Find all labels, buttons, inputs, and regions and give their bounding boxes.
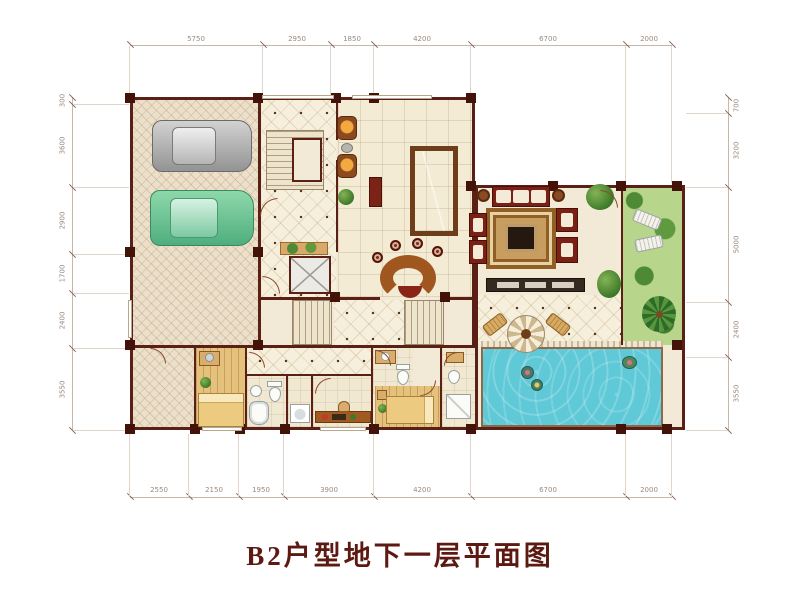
extension-line (686, 430, 728, 431)
dim-label: 3200 (733, 133, 742, 169)
car-green-cabin (170, 198, 218, 238)
dim-label: 2900 (59, 203, 68, 239)
sofa-cushion (496, 190, 511, 203)
sofa-cushion (513, 190, 528, 203)
extension-line (686, 113, 728, 114)
extension-line (129, 46, 130, 96)
dim-label: 4200 (402, 486, 442, 494)
dim-label: 2950 (277, 35, 317, 43)
plan-title: B2户型地下一层平面图 (0, 534, 800, 573)
dim-label: 2150 (194, 486, 234, 494)
column (466, 181, 476, 191)
column (280, 424, 290, 434)
barrel-lamp (337, 116, 357, 140)
extension-line (686, 302, 728, 303)
dim-label: 2550 (139, 486, 179, 494)
planter-box (280, 242, 328, 255)
column (672, 340, 682, 350)
extension-line (283, 434, 284, 496)
bed-pillow (424, 397, 433, 423)
column (440, 292, 450, 302)
side-table (477, 189, 490, 202)
window (262, 95, 334, 99)
desk (315, 411, 371, 423)
armchair (556, 237, 578, 263)
column (330, 292, 340, 302)
desk-item (322, 414, 328, 420)
deco-knob (341, 143, 353, 153)
extension-line (73, 430, 129, 431)
extension-line (373, 46, 374, 96)
window (320, 427, 366, 431)
dim-label: 3600 (59, 128, 68, 164)
extension-line (470, 434, 471, 496)
armchair (469, 240, 487, 264)
dresser-mirror (205, 353, 214, 362)
pool-float (531, 379, 543, 391)
column (616, 424, 626, 434)
wall (245, 348, 247, 427)
extension-line (671, 46, 672, 183)
wall (621, 188, 623, 345)
dim-label: 700 (733, 88, 742, 124)
elevator (289, 256, 331, 294)
desk-item (332, 414, 346, 420)
extension-line (188, 434, 189, 496)
bed (386, 396, 434, 424)
armchair (469, 213, 487, 237)
desk-item (350, 414, 356, 420)
column (125, 340, 135, 350)
armchair-cushion (561, 213, 573, 226)
potted-plant (338, 189, 354, 205)
wall (133, 345, 475, 348)
dim-label: 3550 (59, 372, 68, 408)
extension-line (262, 46, 263, 96)
billiard-table (410, 146, 458, 236)
dim-label: 3900 (309, 486, 349, 494)
sofa-three-seat (492, 186, 550, 207)
extension-line (686, 187, 728, 188)
staircase-lower-left (292, 300, 332, 345)
bar-stool (390, 240, 401, 251)
extension-line (671, 434, 672, 496)
bed-pillow (199, 394, 243, 403)
column (369, 424, 379, 434)
column (466, 93, 476, 103)
column (662, 424, 672, 434)
extension-line (73, 254, 129, 255)
coffee-table (505, 224, 537, 252)
lower-hall (334, 300, 404, 345)
extension-line (129, 434, 130, 496)
car-gray-cabin (172, 127, 216, 165)
wall (440, 348, 442, 427)
window (128, 300, 132, 338)
dim-label: 1950 (241, 486, 281, 494)
wall (286, 376, 288, 427)
armchair-cushion (473, 218, 483, 231)
column (125, 247, 135, 257)
dim-label: 300 (59, 83, 68, 119)
parasol-pole (521, 329, 531, 339)
floorplan-canvas: 5750 2950 1850 4200 6700 2000 2550 2150 … (0, 0, 800, 600)
shower (446, 394, 471, 419)
tv-cabinet (486, 278, 585, 292)
dim-label: 1850 (332, 35, 372, 43)
extension-line (625, 46, 626, 183)
staircase-lower-right (404, 300, 444, 345)
extension-line (73, 293, 129, 294)
dim-label: 4200 (402, 35, 442, 43)
bedroom-corridor (247, 348, 373, 376)
extension-line (686, 357, 728, 358)
potted-plant (200, 377, 211, 388)
extension-line (73, 348, 129, 349)
extension-line (73, 187, 129, 188)
column (253, 340, 263, 350)
column (616, 181, 626, 191)
extension-line (73, 104, 129, 105)
wall (258, 100, 261, 345)
tv-cabinet-item (552, 282, 574, 288)
window (352, 95, 432, 99)
dim-label: 5750 (176, 35, 216, 43)
desk-chair (338, 401, 350, 412)
stair-landing (292, 138, 322, 182)
wall (194, 348, 196, 427)
extension-line (238, 434, 239, 496)
dim-label: 2400 (733, 312, 742, 348)
bed (198, 393, 244, 427)
bathtub (249, 401, 269, 425)
tv-cabinet-item (497, 282, 519, 288)
column (466, 424, 476, 434)
wall (311, 376, 313, 427)
bar-stool (432, 246, 443, 257)
column (125, 93, 135, 103)
sink (250, 385, 262, 397)
tv-cabinet-item (525, 282, 547, 288)
dim-line-right (728, 97, 729, 430)
barrel-lamp (337, 154, 357, 178)
wall (247, 374, 373, 376)
armchair-cushion (561, 243, 573, 257)
sofa-cushion (531, 190, 546, 203)
extension-line (625, 434, 626, 496)
dim-label: 3550 (733, 376, 742, 412)
dim-label: 5000 (733, 227, 742, 263)
column (125, 424, 135, 434)
pool-float (521, 366, 534, 379)
wall (259, 297, 380, 300)
wall (371, 348, 373, 427)
extension-line (330, 46, 331, 96)
dim-line-bottom (130, 497, 672, 498)
armchair (556, 208, 578, 232)
column (672, 181, 682, 191)
armchair-cushion (473, 245, 483, 258)
pool-float (622, 356, 637, 369)
wine-cabinet (369, 177, 382, 207)
dim-label: 2000 (629, 35, 669, 43)
extension-line (373, 434, 374, 496)
dim-label: 2000 (629, 486, 669, 494)
window (202, 427, 242, 431)
potted-plant (597, 270, 621, 298)
column (253, 247, 263, 257)
side-table (552, 189, 565, 202)
palm-trunk (656, 311, 663, 318)
dim-label: 6700 (528, 486, 568, 494)
dim-label: 1700 (59, 256, 68, 292)
bar-stool (372, 252, 383, 263)
extension-line (470, 46, 471, 96)
dim-label: 2400 (59, 303, 68, 339)
washing-machine (290, 404, 310, 423)
dim-line-top (130, 45, 672, 46)
dim-label: 6700 (528, 35, 568, 43)
dim-line-left (72, 97, 73, 430)
bar-stool (412, 238, 423, 249)
